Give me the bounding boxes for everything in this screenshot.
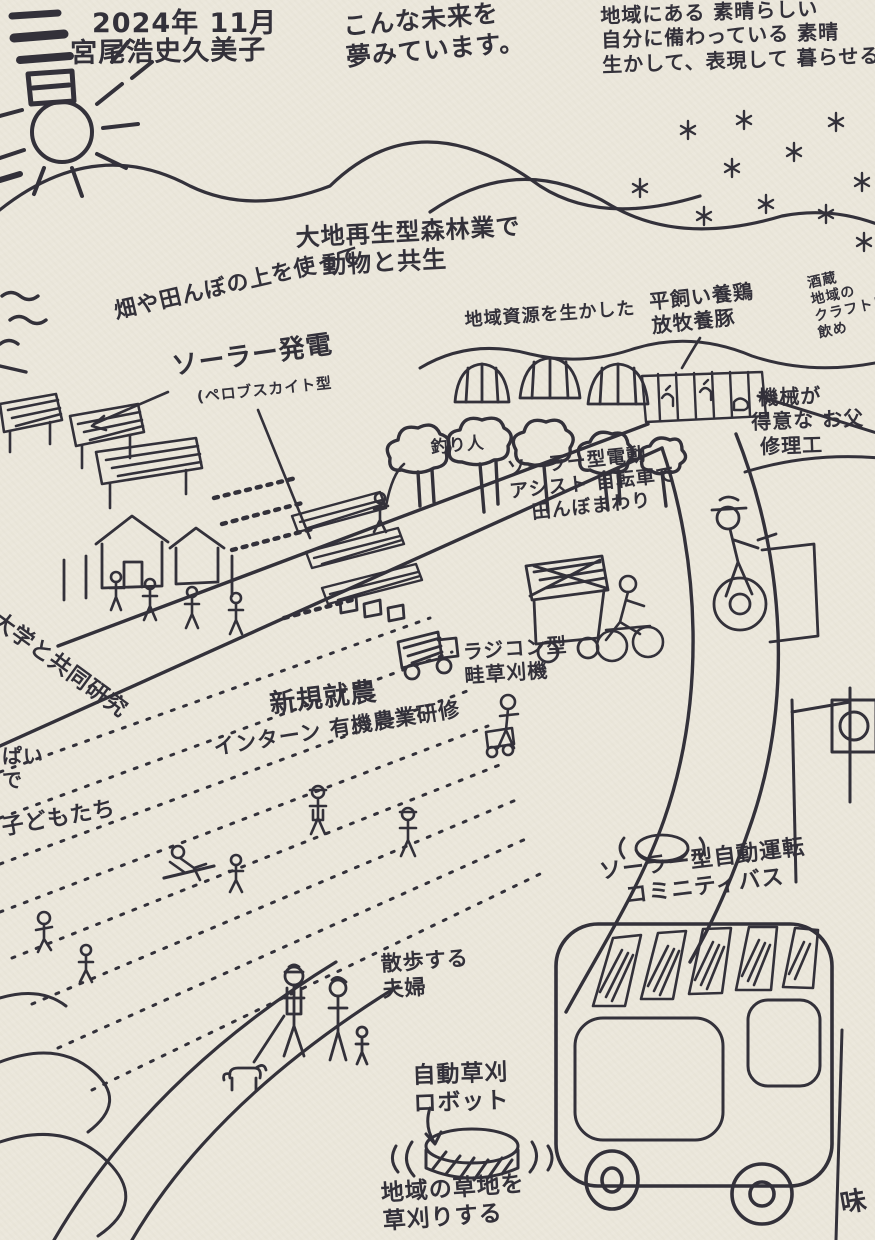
corner-scribble — [12, 13, 74, 104]
annotation-author-names: 宮尾浩史久美子 — [70, 35, 267, 71]
sketch-drawing — [0, 0, 875, 1240]
chicken-pen — [642, 372, 766, 422]
annotation-repair-shop-label: 機械が 得意な お父 修理工 — [750, 382, 865, 459]
solar-array-left — [0, 394, 202, 508]
annotation-strolling-couple-label: 散歩する 夫婦 — [380, 946, 471, 1003]
annotation-left-edge-fragment: ぱい で — [2, 744, 44, 793]
walking-couple — [224, 965, 368, 1090]
annotation-rc-mower-label: ラジコン型 畦草刈機 — [462, 633, 570, 689]
rc-mower-figure — [486, 695, 518, 757]
wavy-marks — [0, 293, 46, 373]
hand-drawn-map: 2024年 11月宮尾浩史久美子こんな未来を 夢みています。地域にある 素晴らし… — [0, 0, 875, 1240]
children-figures — [36, 846, 243, 982]
farm-machine-rider — [712, 497, 818, 642]
annotation-mowing-robot-label: 自動草刈 ロボット — [412, 1059, 510, 1118]
bus-solar-roof — [593, 927, 818, 1006]
mowing-robot — [392, 1108, 552, 1180]
walking-path — [54, 962, 398, 1240]
village-houses — [64, 516, 404, 621]
annotation-taste-fragment: 味 — [838, 1185, 870, 1221]
farm-truck — [398, 632, 458, 679]
grass-tufts — [633, 111, 871, 251]
annotation-mowing-note-label: 地域の草地を 草刈りする — [380, 1170, 528, 1236]
field-worker-figures — [310, 786, 416, 856]
solar-array-mid — [292, 492, 422, 604]
stream-lines — [0, 994, 126, 1237]
community-bus — [556, 924, 832, 1224]
greenhouses — [455, 358, 648, 404]
annotation-vision-statement: 地域にある 素晴らしい 自分に備わっている 素晴 生かして、表現して 暮らせる — [600, 0, 875, 77]
